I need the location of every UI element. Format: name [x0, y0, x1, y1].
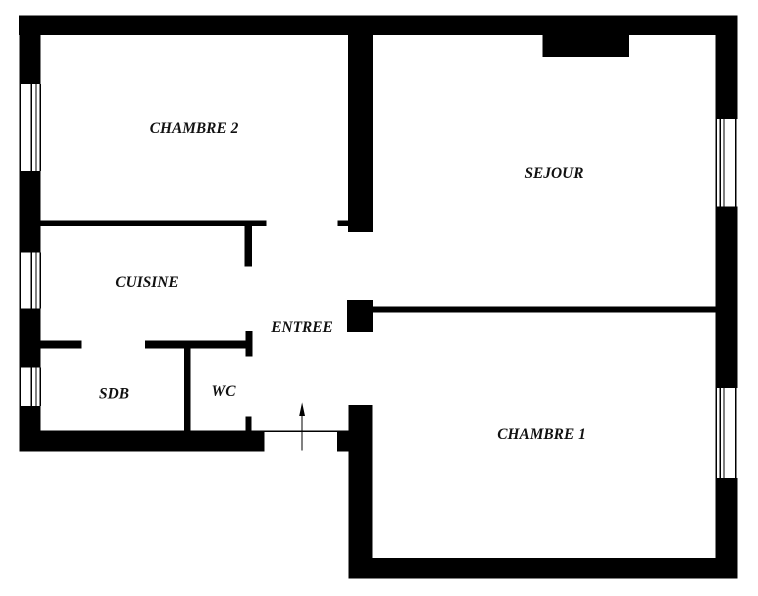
- svg-text:CUISINE: CUISINE: [115, 274, 178, 291]
- svg-text:WC: WC: [212, 383, 237, 400]
- svg-text:SEJOUR: SEJOUR: [524, 165, 583, 182]
- svg-text:CHAMBRE 2: CHAMBRE 2: [150, 120, 239, 137]
- svg-text:SDB: SDB: [99, 386, 129, 403]
- svg-text:CHAMBRE 1: CHAMBRE 1: [497, 426, 586, 443]
- svg-text:ENTREE: ENTREE: [270, 319, 333, 336]
